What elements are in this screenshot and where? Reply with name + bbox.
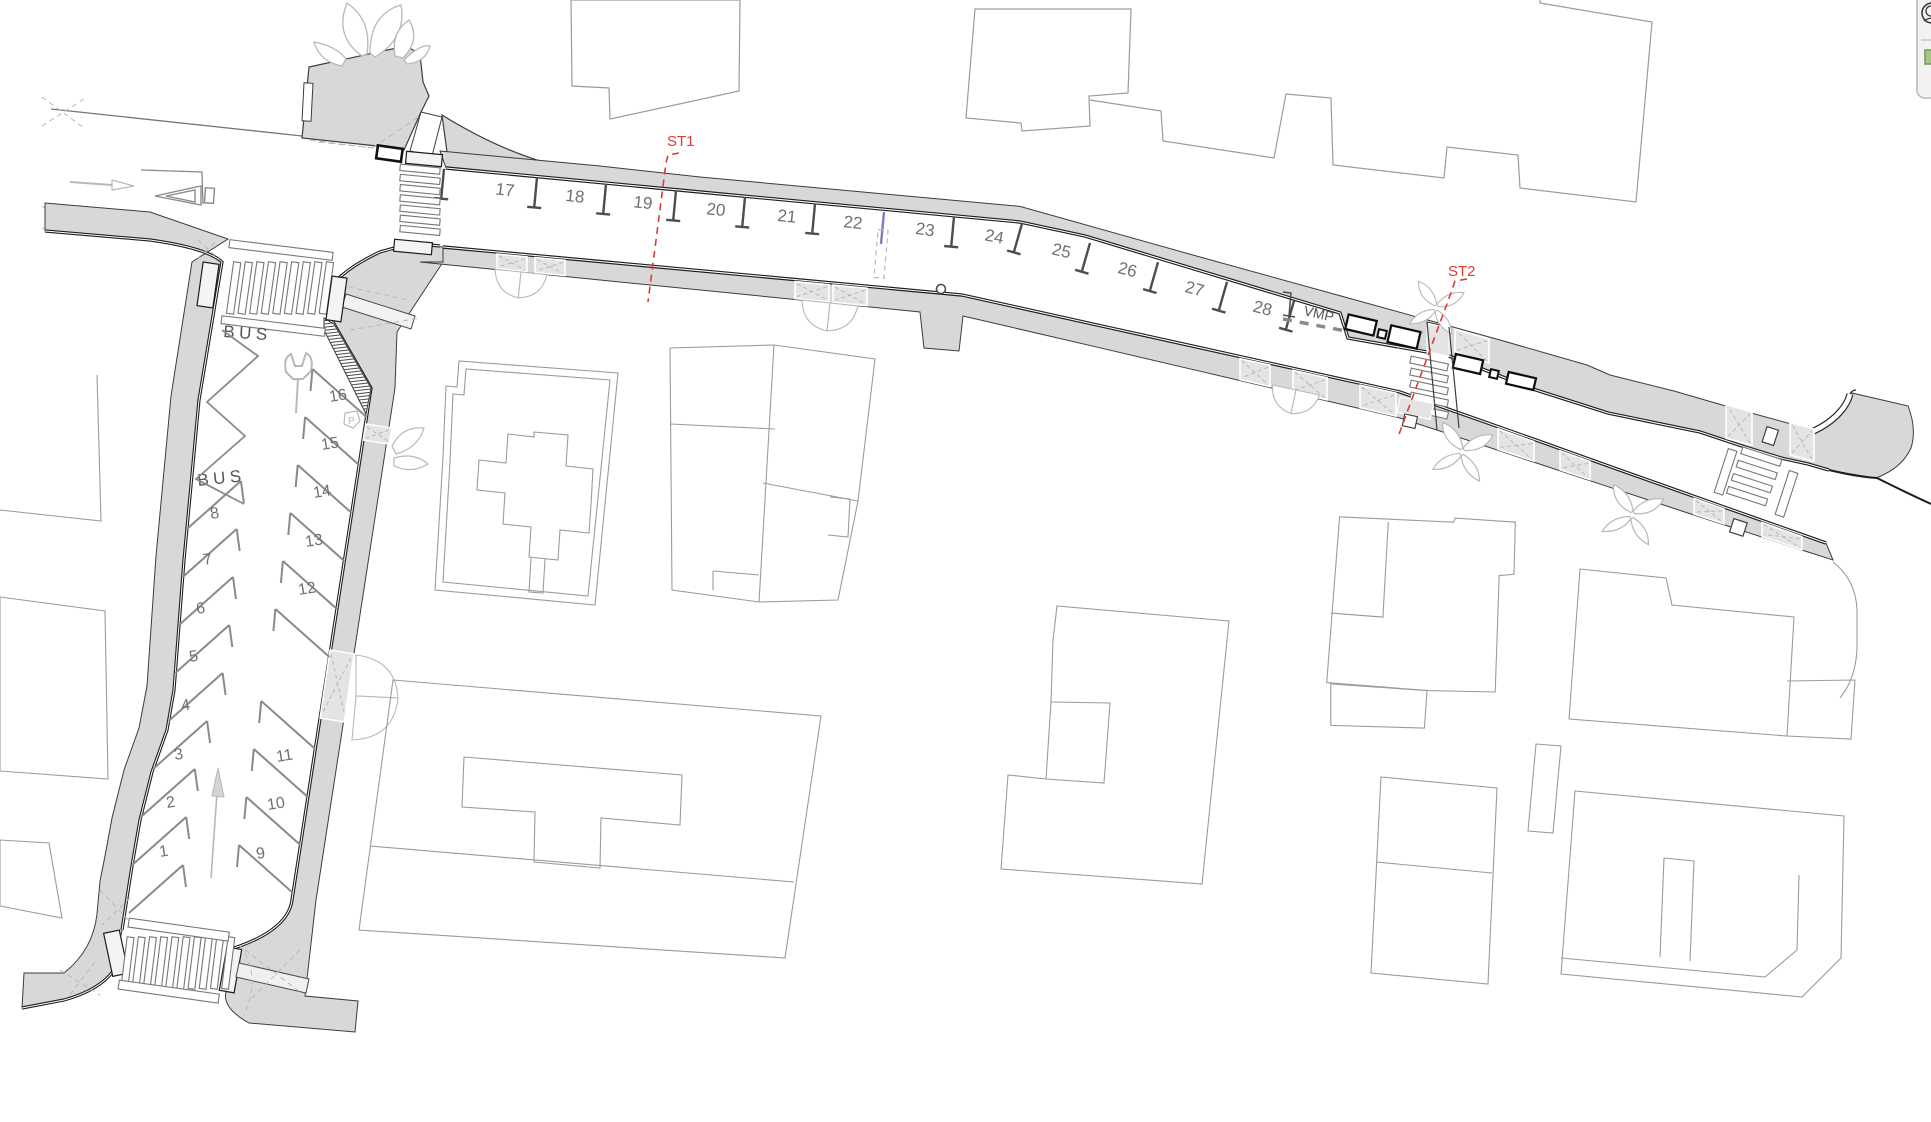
- svg-text:10: 10: [266, 794, 286, 814]
- svg-text:19: 19: [633, 192, 654, 213]
- svg-text:17: 17: [495, 179, 516, 200]
- svg-text:BUS: BUS: [223, 322, 273, 344]
- svg-text:15: 15: [320, 434, 340, 454]
- svg-text:P: P: [348, 416, 355, 427]
- svg-text:ST2: ST2: [1448, 263, 1476, 280]
- svg-text:23: 23: [914, 219, 935, 240]
- svg-text:16: 16: [328, 386, 348, 406]
- svg-text:11: 11: [275, 747, 294, 766]
- svg-text:22: 22: [843, 212, 864, 233]
- svg-text:21: 21: [777, 206, 798, 227]
- svg-text:24: 24: [983, 226, 1005, 248]
- svg-text:13: 13: [304, 531, 324, 551]
- svg-text:14: 14: [312, 482, 332, 502]
- svg-text:18: 18: [565, 186, 586, 207]
- svg-text:ST1: ST1: [667, 133, 695, 150]
- svg-text:20: 20: [706, 199, 727, 220]
- svg-text:12: 12: [297, 579, 317, 599]
